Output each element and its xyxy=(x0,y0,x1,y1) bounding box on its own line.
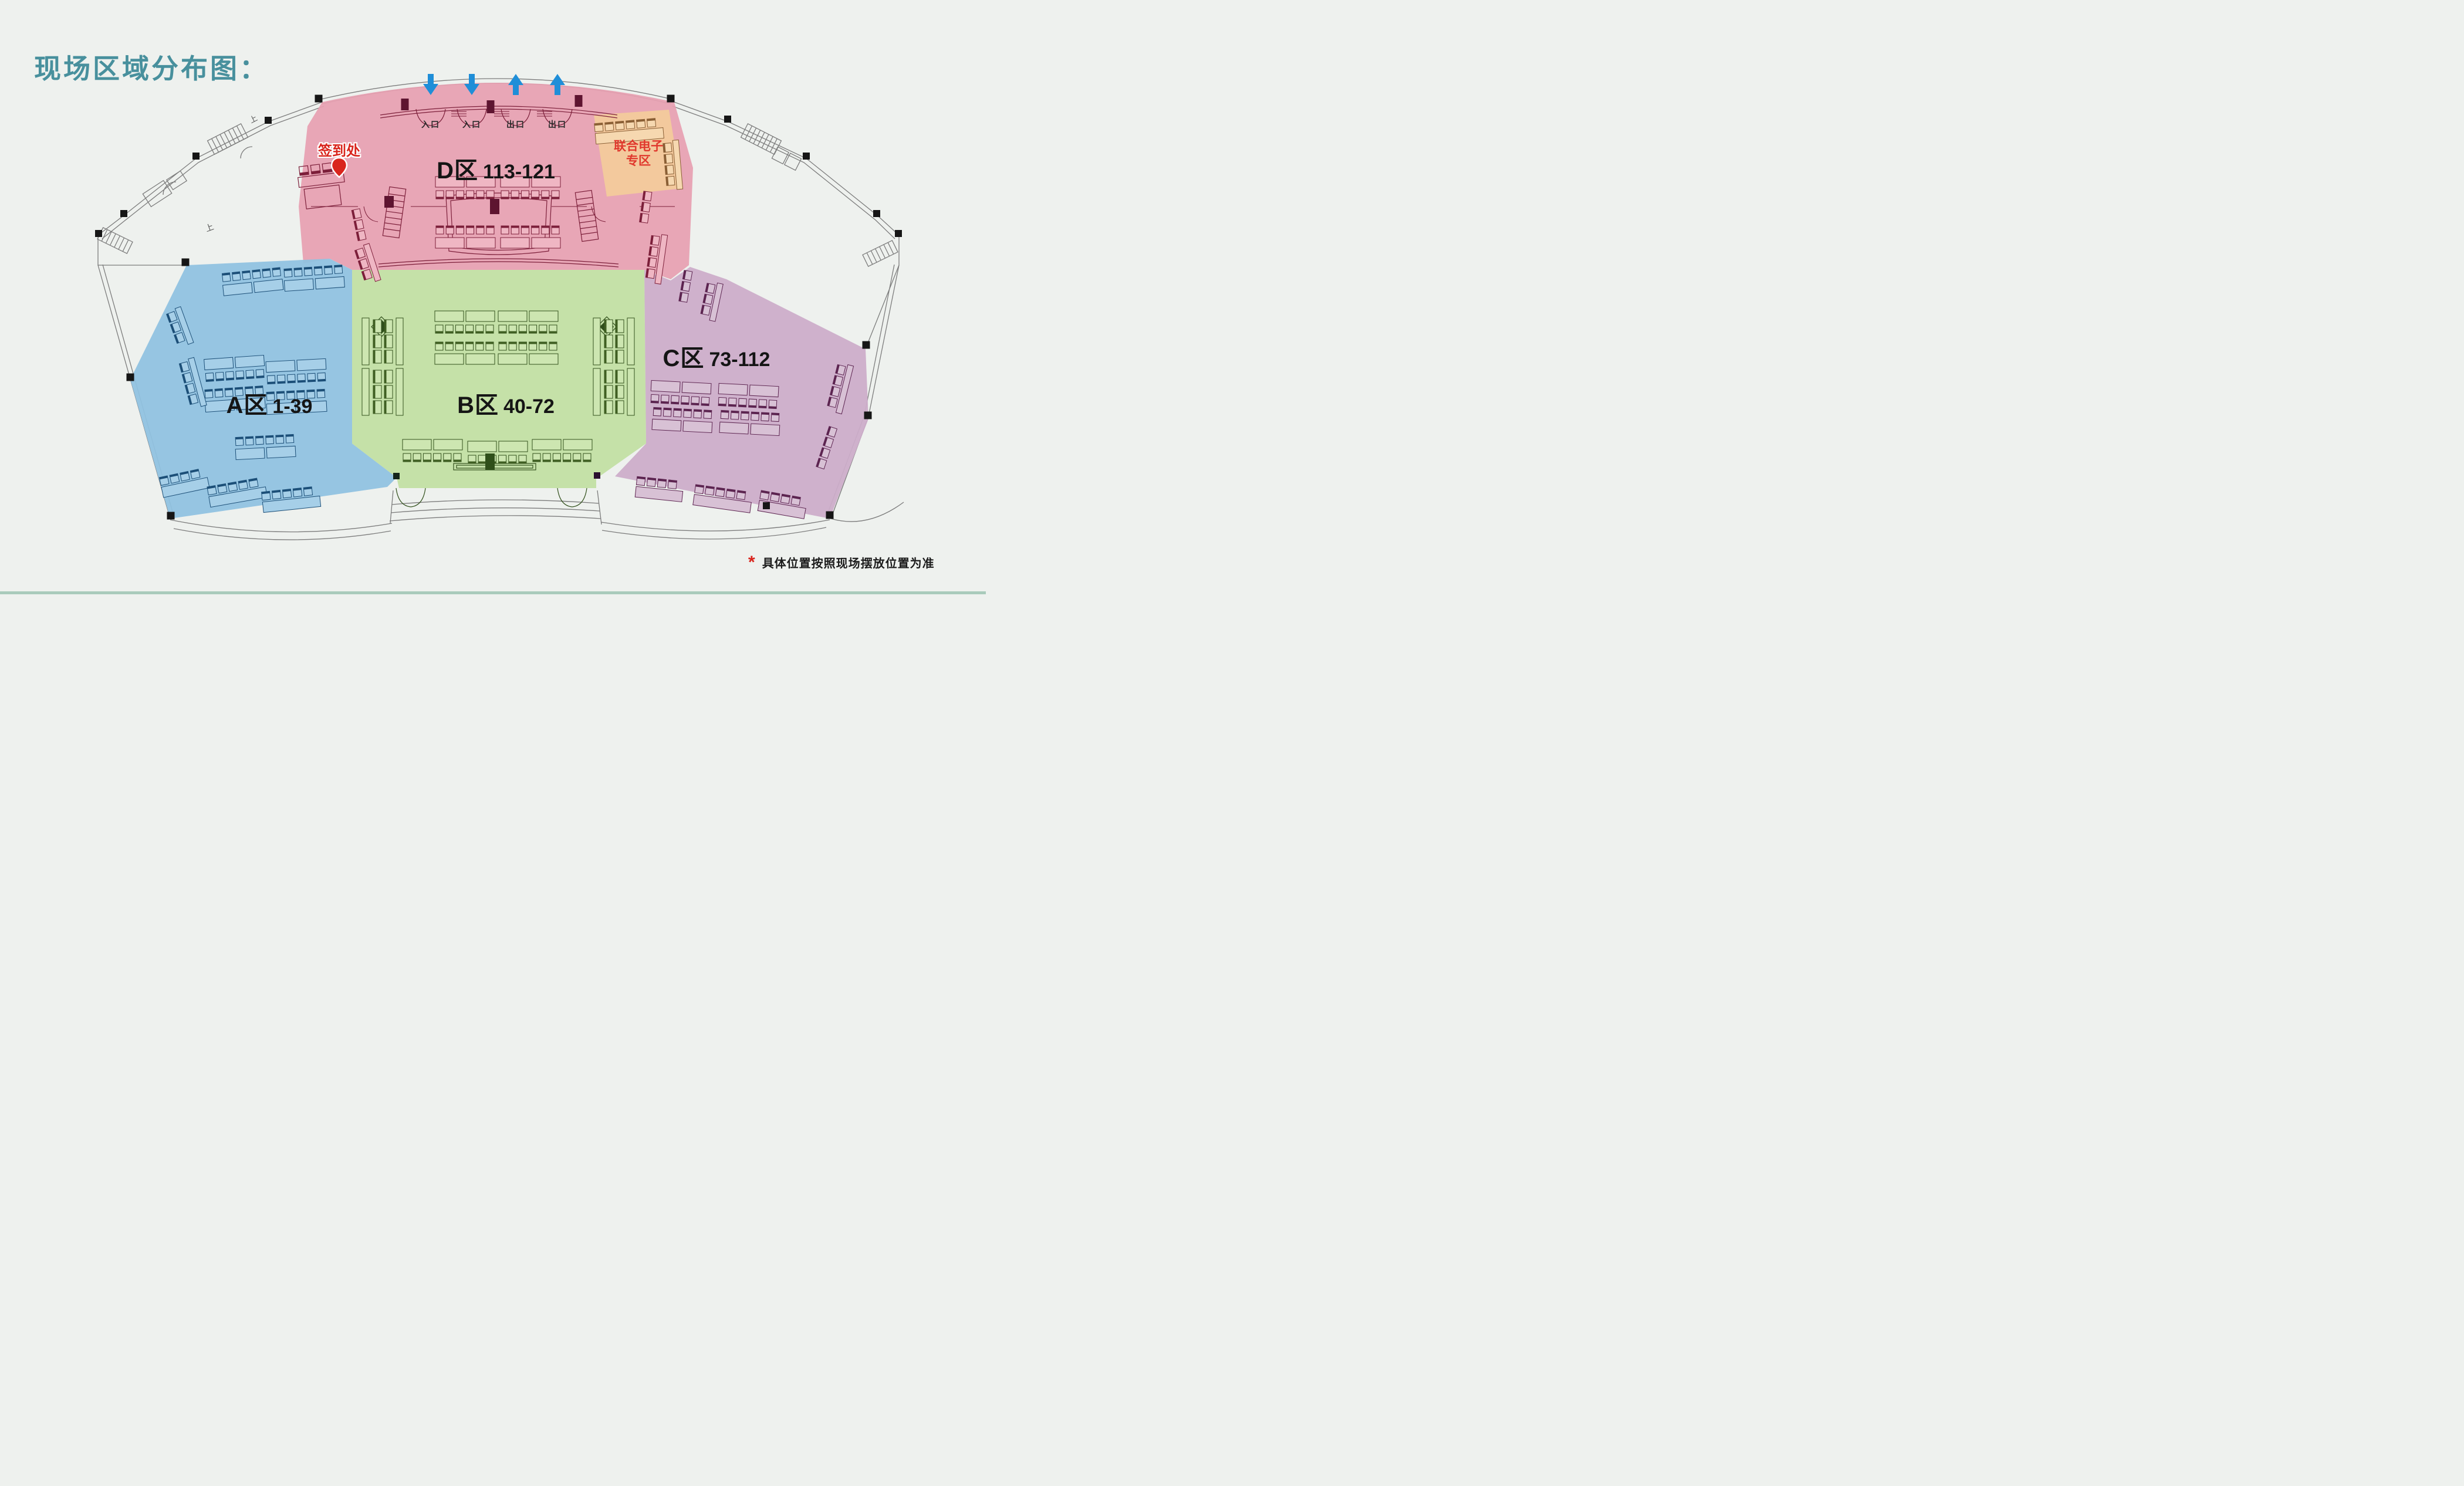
footnote: * 具体位置按照现场摆放位置为准 xyxy=(748,554,935,571)
gate-exit-2-label: 出口 xyxy=(539,119,576,130)
zone-a-label: A区1-39 xyxy=(158,386,381,420)
zone-c-label: C区73-112 xyxy=(605,339,828,373)
special-zone-label-line1: 联合电子 xyxy=(580,139,697,154)
footnote-text: 具体位置按照现场摆放位置为准 xyxy=(762,554,935,571)
gate-exit-2: 出口 xyxy=(539,74,576,130)
zone-d-range: 113-121 xyxy=(483,161,555,183)
bottom-edge-strip xyxy=(0,591,986,594)
zone-a-name: A区 xyxy=(227,392,268,418)
arrow-down-icon xyxy=(464,74,479,95)
floor-plan-drawing: 上 上 xyxy=(0,0,986,594)
zone-d-label: D区113-121 xyxy=(384,151,607,185)
asterisk-marker: * xyxy=(748,557,755,568)
gate-entrance-2: 入口 xyxy=(453,74,491,130)
gate-entrance-1-label: 入口 xyxy=(412,119,449,130)
arrow-up-icon xyxy=(550,74,565,95)
special-zone-label-line2: 专区 xyxy=(580,154,697,168)
arrow-up-icon xyxy=(508,74,523,95)
zone-d-name: D区 xyxy=(437,158,478,184)
arrow-down-icon xyxy=(423,74,438,95)
gate-exit-1-label: 出口 xyxy=(497,119,535,130)
gate-exit-1: 出口 xyxy=(497,74,535,130)
zone-b-range: 40-72 xyxy=(503,395,555,418)
location-pin-icon xyxy=(330,156,349,178)
gate-entrance-2-label: 入口 xyxy=(453,119,491,130)
gate-entrance-1: 入口 xyxy=(412,74,449,130)
stairs-up-label-2: 上 xyxy=(248,113,259,124)
zone-b-name: B区 xyxy=(457,392,499,418)
zone-c-range: 73-112 xyxy=(709,348,770,371)
zone-c-name: C区 xyxy=(663,346,705,371)
zone-a-range: 1-39 xyxy=(272,395,312,418)
floor-plan-canvas: 上 上 xyxy=(0,0,986,594)
zone-b-label: B区40-72 xyxy=(394,386,617,420)
stairs-up-label: 上 xyxy=(204,222,215,233)
page-title: 现场区域分布图： xyxy=(34,48,269,86)
